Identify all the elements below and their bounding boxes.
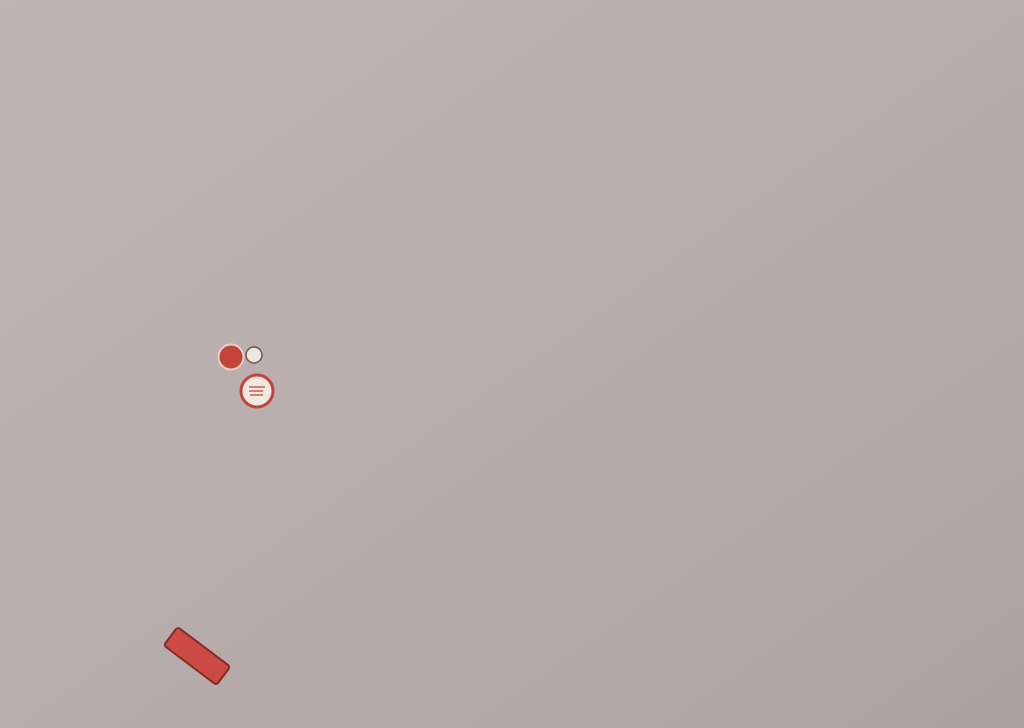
tile-mural-photo (0, 0, 1024, 728)
route-marker (219, 345, 244, 370)
road-sign-plate (164, 627, 231, 685)
route-marker-circle (219, 345, 244, 370)
map-signs (164, 345, 273, 686)
info-marker-circle (246, 347, 262, 363)
town-sign-icon (241, 375, 273, 407)
tile-mural-map (0, 0, 1024, 728)
road-sign-n340a (164, 627, 231, 685)
info-marker (246, 347, 262, 363)
photo-vignette (0, 0, 1024, 728)
